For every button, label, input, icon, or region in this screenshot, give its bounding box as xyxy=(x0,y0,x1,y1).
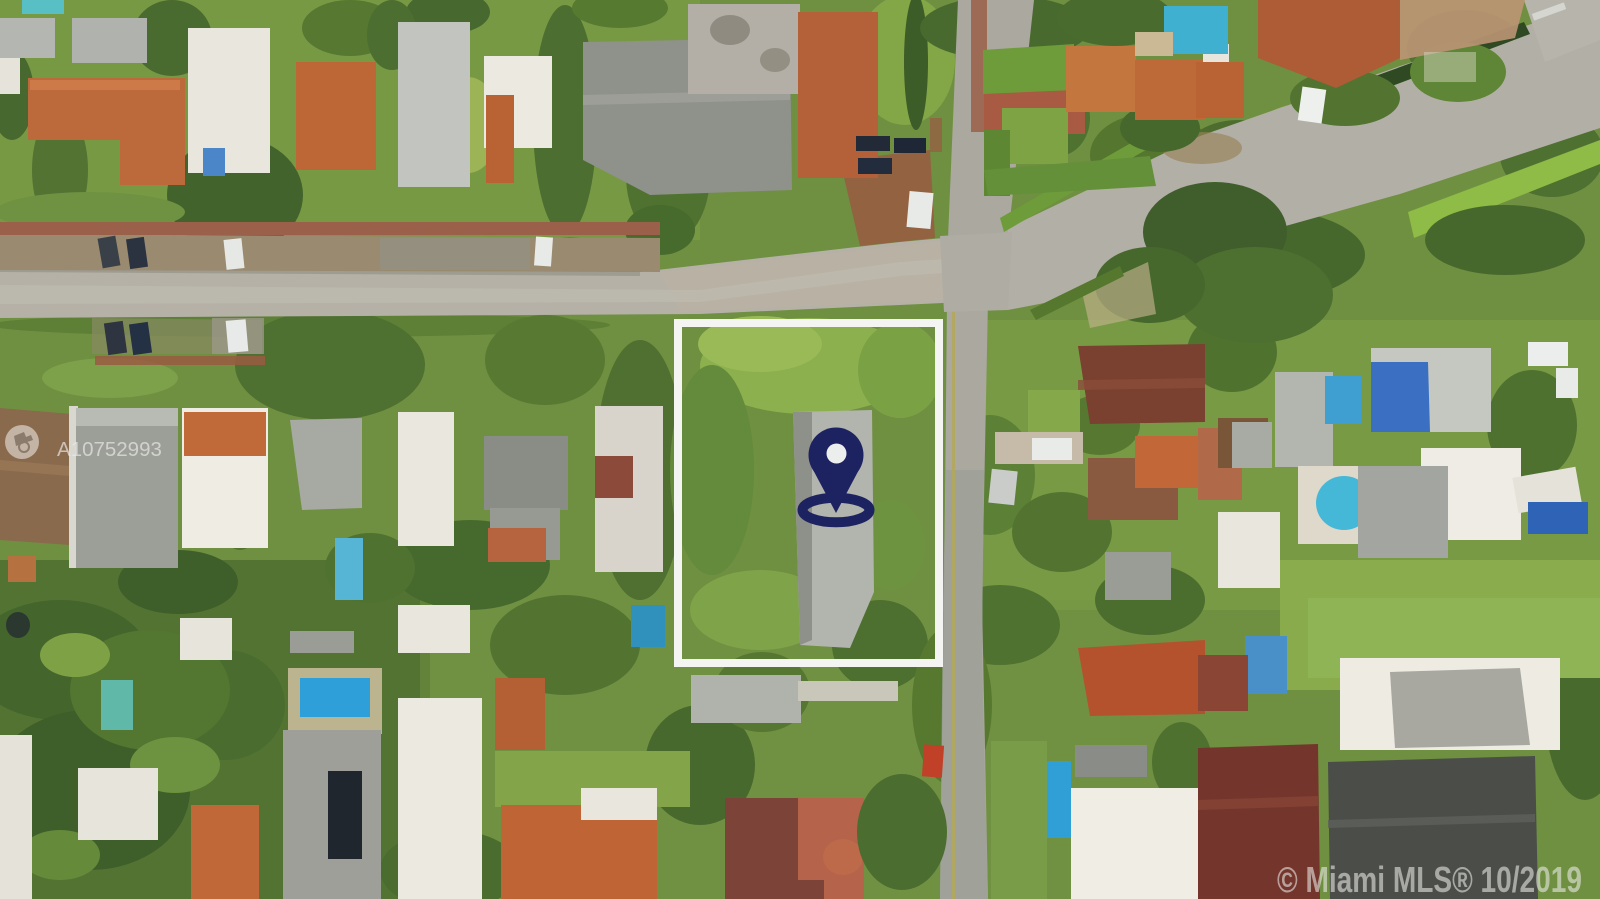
svg-text:A10752993: A10752993 xyxy=(57,438,162,461)
svg-text:© Miami MLS® 10/2019: © Miami MLS® 10/2019 xyxy=(1277,859,1582,899)
